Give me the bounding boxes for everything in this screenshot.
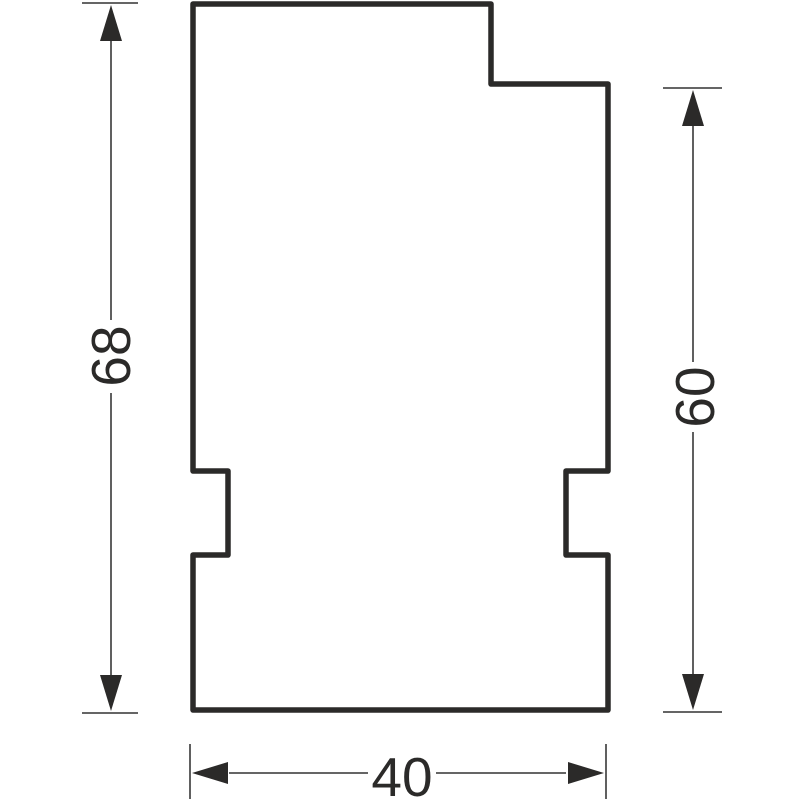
right-height-dimension-arrowhead-up: [682, 90, 704, 126]
width-dimension-arrowhead-right: [568, 762, 604, 784]
right-height-dimension-arrowhead-down: [682, 674, 704, 710]
width-dimension-arrowhead-left: [192, 762, 228, 784]
width-dimension-label: 40: [371, 746, 432, 800]
overall-height-dimension-label: 68: [80, 325, 142, 386]
overall-height-dimension-arrowhead-down: [100, 675, 122, 711]
right-height-dimension-label: 60: [664, 366, 726, 427]
overall-height-dimension-arrowhead-up: [100, 5, 122, 41]
profile-drawing: 686040: [0, 0, 800, 800]
drawing-canvas: 686040: [0, 0, 800, 800]
stepped-plate-profile: [193, 4, 608, 710]
